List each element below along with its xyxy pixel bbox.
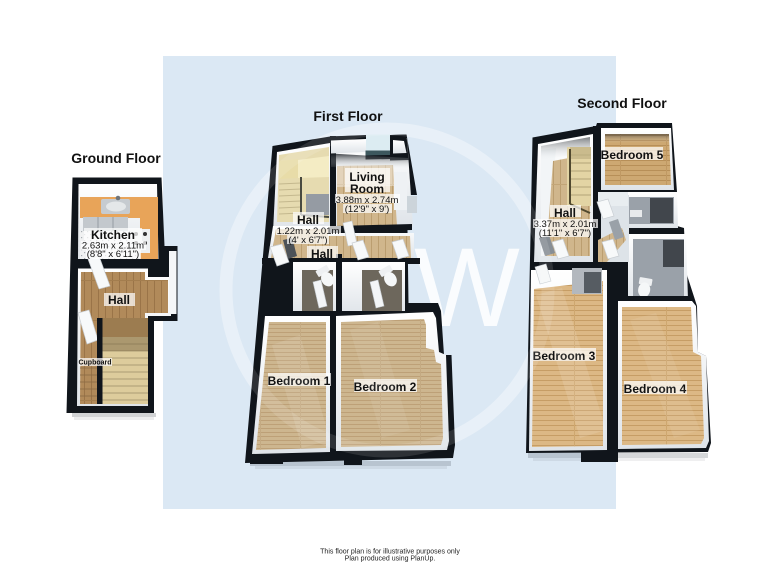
svg-text:First Floor: First Floor: [313, 108, 383, 124]
svg-text:Hall: Hall: [108, 293, 130, 307]
svg-text:Second Floor: Second Floor: [577, 95, 667, 111]
svg-text:(11'1" x 6'7"): (11'1" x 6'7"): [539, 228, 591, 239]
svg-text:(12'9" x 9'): (12'9" x 9'): [345, 204, 390, 215]
svg-text:Hall: Hall: [554, 206, 576, 220]
svg-text:Plan produced using PlanUp.: Plan produced using PlanUp.: [345, 556, 436, 563]
svg-text:(4' x 6'7"): (4' x 6'7"): [288, 235, 327, 246]
svg-text:Cupboard: Cupboard: [78, 360, 111, 367]
svg-text:Hall: Hall: [311, 247, 333, 261]
svg-text:Room: Room: [350, 182, 384, 196]
svg-text:(8'8" x 6'11"): (8'8" x 6'11"): [87, 249, 139, 260]
svg-text:Ground Floor: Ground Floor: [71, 150, 161, 166]
svg-text:Hall: Hall: [297, 213, 319, 227]
svg-text:Bedroom 5: Bedroom 5: [601, 148, 664, 162]
svg-text:This floor plan is for illustr: This floor plan is for illustrative purp…: [320, 549, 460, 556]
